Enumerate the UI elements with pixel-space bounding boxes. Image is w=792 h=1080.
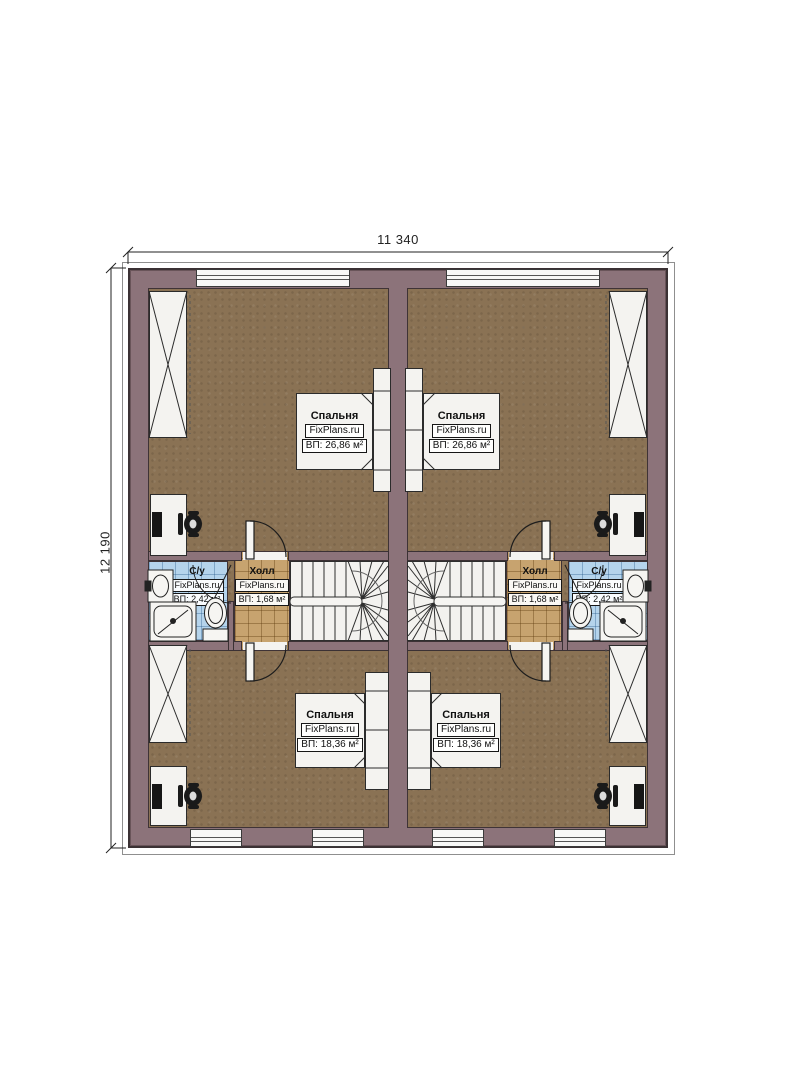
door-opening bbox=[243, 642, 287, 650]
window bbox=[196, 269, 350, 287]
dimension-height-label: 12 190 bbox=[98, 508, 113, 598]
floor-plan-page: 11 340 12 190 Спальня FixPlans.ru ВП: 26… bbox=[0, 0, 792, 1080]
window bbox=[190, 829, 242, 847]
staircase-left bbox=[290, 561, 389, 641]
staircase-right bbox=[407, 561, 506, 641]
wall-segment bbox=[288, 551, 389, 561]
wall-segment bbox=[288, 641, 389, 651]
bathroom-floor-right bbox=[568, 561, 648, 641]
wall-segment bbox=[562, 601, 568, 651]
wardrobe bbox=[609, 291, 647, 438]
dimension-width-label: 11 340 bbox=[348, 232, 448, 247]
door-opening bbox=[509, 552, 553, 560]
wardrobe bbox=[149, 645, 187, 743]
desk bbox=[150, 494, 187, 556]
window bbox=[446, 269, 600, 287]
wardrobe bbox=[149, 291, 187, 438]
wall-segment bbox=[228, 601, 234, 651]
window bbox=[312, 829, 364, 847]
door-opening bbox=[509, 642, 553, 650]
nightstand-column bbox=[365, 672, 389, 790]
desk bbox=[609, 766, 646, 826]
bathroom-floor-left bbox=[148, 561, 228, 641]
wall-segment bbox=[407, 551, 508, 561]
wardrobe bbox=[609, 645, 647, 743]
desk bbox=[609, 494, 646, 556]
hall-floor-right bbox=[506, 551, 562, 651]
nightstand-column bbox=[407, 672, 431, 790]
hall-floor-left bbox=[234, 551, 290, 651]
door-opening bbox=[243, 552, 287, 560]
nightstand-column bbox=[373, 368, 391, 492]
desk bbox=[150, 766, 187, 826]
wall-segment bbox=[407, 641, 508, 651]
window bbox=[554, 829, 606, 847]
window bbox=[432, 829, 484, 847]
nightstand-column bbox=[405, 368, 423, 492]
